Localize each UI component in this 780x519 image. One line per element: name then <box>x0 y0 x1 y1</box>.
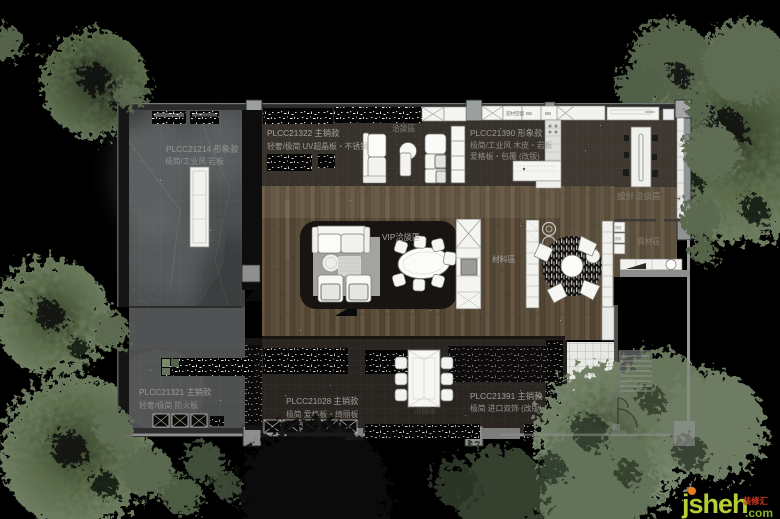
svg-text:PLCC21214 形象款: PLCC21214 形象款 <box>166 144 239 154</box>
svg-text:BB: BB <box>545 111 551 116</box>
svg-text:迎材空國: 迎材空國 <box>506 110 524 117</box>
svg-text:設計洽談區: 設計洽談區 <box>617 190 661 201</box>
svg-text:极简/工业风 岩板: 极简/工业风 岩板 <box>165 156 224 166</box>
svg-text:极简/工业风 木皮・岩板: 极简/工业风 木皮・岩板 <box>470 140 553 150</box>
svg-text:BB: BB <box>526 111 532 116</box>
svg-text:装修汇: 装修汇 <box>742 496 769 506</box>
svg-text:資材: 資材 <box>615 225 622 230</box>
svg-text:資材: 資材 <box>615 236 622 241</box>
svg-text:PLCC21322 主销款: PLCC21322 主销款 <box>267 128 340 138</box>
svg-text:材料區: 材料區 <box>492 254 516 264</box>
svg-text:資材區: 資材區 <box>637 236 661 246</box>
svg-text:PLCC21028 主销款: PLCC21028 主销款 <box>286 396 359 406</box>
svg-text:洽談區: 洽談區 <box>392 123 416 133</box>
svg-text:.com: .com <box>745 506 773 519</box>
svg-text:PLCC21390 形象款: PLCC21390 形象款 <box>470 128 543 138</box>
svg-text:极简 进口双饰 (改版): 极简 进口双饰 (改版) <box>470 403 542 413</box>
svg-text:轻奢/极简 UV超晶板・不锈钢: 轻奢/极简 UV超晶板・不锈钢 <box>267 141 368 151</box>
svg-text:jsheh: jsheh <box>681 489 748 519</box>
svg-text:极简 爱格板・绮丽板: 极简 爱格板・绮丽板 <box>286 409 359 419</box>
svg-text:PLCC21321 主销款: PLCC21321 主销款 <box>139 387 212 397</box>
svg-text:VIP洽談區: VIP洽談區 <box>382 232 420 242</box>
svg-text:洽談區: 洽談區 <box>414 405 437 415</box>
svg-text:PLCC21391 主销款: PLCC21391 主销款 <box>470 391 543 401</box>
svg-text:爱格板・包覆 (改版): 爱格板・包覆 (改版) <box>470 151 540 161</box>
svg-text:轻奢/极简 防火板: 轻奢/极简 防火板 <box>139 400 198 410</box>
